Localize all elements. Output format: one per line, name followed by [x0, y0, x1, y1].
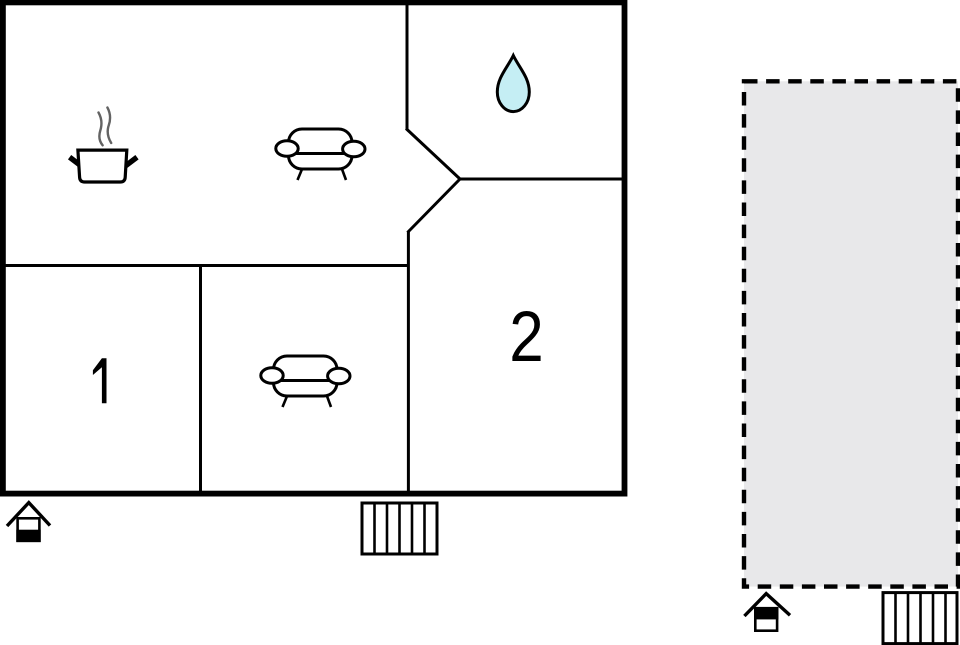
svg-text:2: 2 [509, 298, 543, 377]
